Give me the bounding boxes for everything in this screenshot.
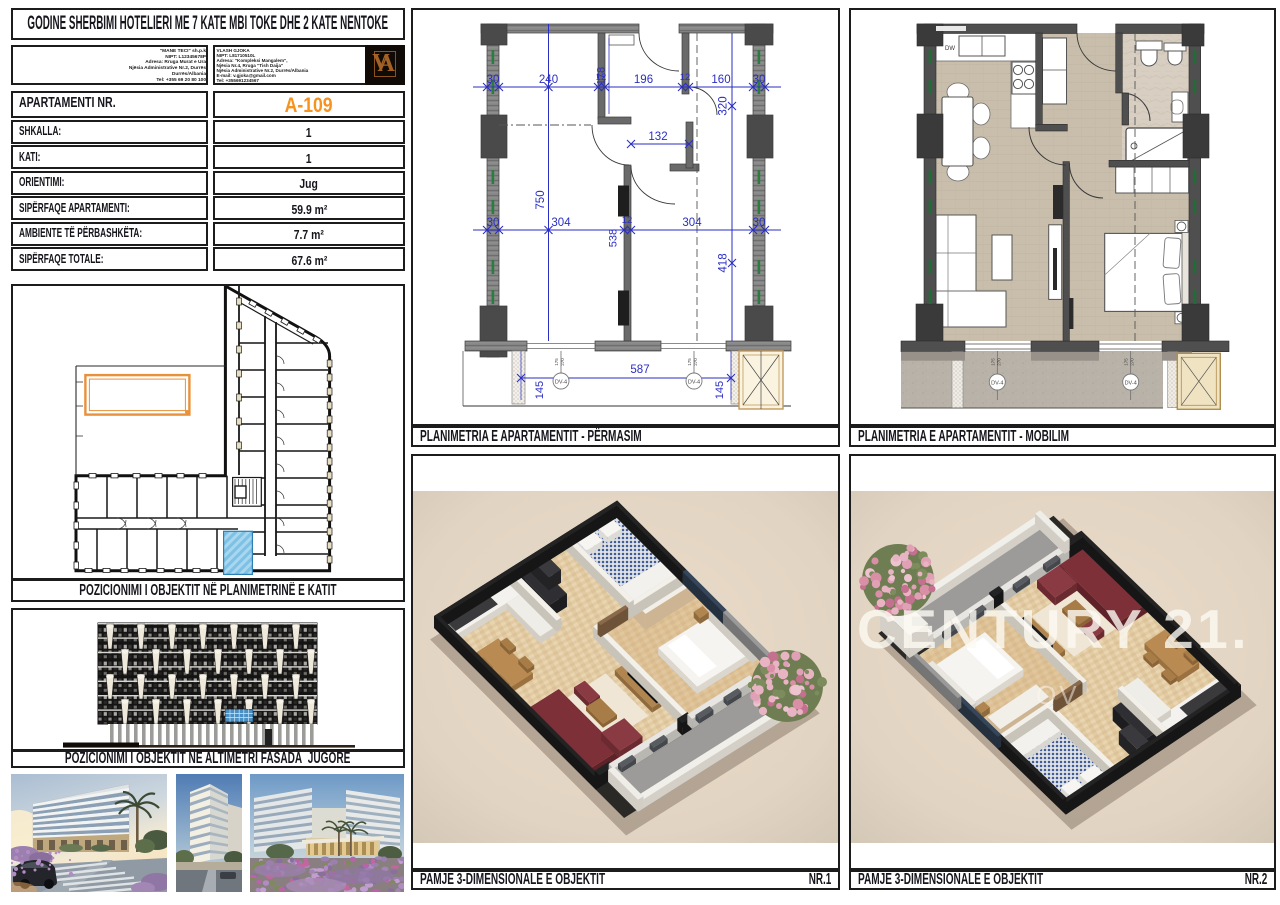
svg-text:30: 30 [753, 74, 766, 86]
svg-text:12: 12 [622, 215, 633, 226]
svg-text:270: 270 [996, 358, 1001, 366]
svg-text:538: 538 [608, 229, 620, 247]
svg-text:30: 30 [753, 217, 766, 229]
svg-text:175: 175 [687, 358, 692, 366]
svg-text:175: 175 [1124, 358, 1129, 366]
svg-text:DV-4: DV-4 [991, 381, 1003, 387]
svg-text:270: 270 [693, 358, 698, 366]
svg-text:270: 270 [560, 358, 565, 366]
svg-text:DV-4: DV-4 [555, 380, 567, 386]
svg-text:587: 587 [630, 364, 649, 376]
svg-text:30: 30 [487, 74, 500, 86]
svg-text:12: 12 [680, 72, 691, 83]
svg-text:132: 132 [648, 131, 667, 143]
svg-text:418: 418 [718, 253, 730, 272]
svg-text:160: 160 [711, 74, 730, 86]
svg-text:750: 750 [535, 190, 547, 209]
svg-text:DV-4: DV-4 [1125, 381, 1137, 387]
svg-text:196: 196 [634, 74, 653, 86]
svg-text:QV: QV [1036, 680, 1080, 710]
svg-text:145: 145 [714, 381, 726, 399]
svg-text:175: 175 [554, 358, 559, 366]
svg-text:CENTURY 21.: CENTURY 21. [857, 598, 1250, 660]
svg-text:DV-4: DV-4 [688, 380, 700, 386]
svg-text:320: 320 [718, 96, 730, 115]
svg-text:30: 30 [487, 217, 500, 229]
svg-text:DW: DW [945, 46, 955, 52]
svg-text:270: 270 [1130, 358, 1135, 366]
svg-text:178: 178 [596, 67, 608, 85]
svg-text:175: 175 [990, 358, 995, 366]
svg-text:304: 304 [551, 217, 571, 229]
svg-text:145: 145 [534, 381, 546, 399]
svg-text:304: 304 [682, 217, 702, 229]
